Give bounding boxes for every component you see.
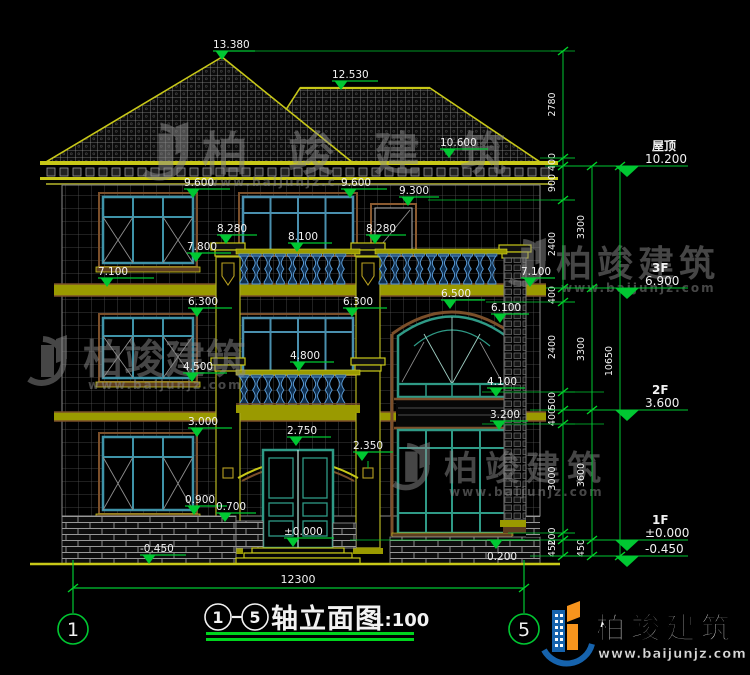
floor-name: 2F: [652, 383, 669, 397]
elevation-value: 3.200: [490, 409, 520, 421]
elevation-value: 4.100: [487, 376, 517, 388]
dim-value: 400: [547, 153, 558, 171]
elevation-value: 12.530: [332, 69, 369, 81]
watermark-text: 柏竣建筑: [202, 127, 546, 181]
drawing-title: 15轴立面图1:100: [205, 603, 429, 641]
brand-url: www.baijunjz.com: [598, 647, 747, 662]
elevation-value: 8.100: [288, 231, 318, 243]
watermark-url: www.baijunjz.com: [88, 378, 243, 392]
title-text: 轴立面图: [271, 603, 383, 635]
elevation-value: 10.600: [440, 137, 477, 149]
elevation-drawing: 柏竣建筑www.baijunjz.c柏竣建筑www.baijunjz.com柏竣…: [0, 0, 750, 675]
elevation-value: 4.500: [183, 361, 213, 373]
dim-value: 10650: [604, 346, 615, 376]
floor-elevation: 6.900: [645, 274, 679, 288]
elevation-value: 2.750: [287, 425, 317, 437]
elevation-value: 0.900: [185, 494, 215, 506]
dentil-block: [99, 168, 107, 176]
elevation-value: 7.800: [187, 241, 217, 253]
watermark-url: www.baijunjz.c: [207, 175, 337, 189]
watermark-text: 柏竣建筑: [556, 244, 720, 285]
cad-elevation-screenshot: 柏竣建筑www.baijunjz.c柏竣建筑www.baijunjz.com柏竣…: [0, 0, 750, 675]
dim-value: 400: [547, 408, 558, 426]
elevation-value: 2.350: [353, 440, 383, 452]
dim-value: 3300: [576, 215, 587, 239]
brand-logo: 柏竣建筑www.baijunjz.com: [544, 601, 747, 664]
brand-watermark-logo: [29, 335, 67, 383]
overall-width-dim: 12300: [281, 573, 316, 586]
elevation-value: 13.380: [213, 39, 250, 51]
dentil-block: [60, 168, 68, 176]
elevation-value: 9.300: [399, 185, 429, 197]
axis-number: 1: [67, 619, 79, 641]
floor-elevation: -0.450: [645, 542, 684, 556]
floor-elevation: 10.200: [645, 152, 687, 166]
elevation-value: 6.100: [491, 302, 521, 314]
title-axis-to: 5: [249, 608, 260, 627]
dentil-block: [47, 168, 55, 176]
dim-value: 500: [547, 392, 558, 410]
dim-value: 2400: [547, 335, 558, 359]
elevation-value: 4.800: [290, 350, 320, 362]
floor-elevation: 3.600: [645, 396, 679, 410]
elevation-value: ±0.000: [284, 526, 323, 538]
floor-name: 3F: [652, 261, 669, 275]
elevation-value: 6.500: [441, 288, 471, 300]
floor-elevation: ±0.000: [645, 526, 689, 540]
window-arched-right: [392, 312, 512, 537]
axis-number: 5: [518, 619, 530, 641]
elevation-value: 9.600: [184, 177, 214, 189]
elevation-value: 6.300: [343, 296, 373, 308]
dentil-block: [112, 168, 120, 176]
watermark-text: 柏竣建筑: [83, 337, 247, 383]
elevation-value: 0.200: [487, 551, 517, 563]
pilaster: [351, 243, 385, 554]
brand-name: 柏竣建筑: [596, 611, 736, 645]
elevation-value: 3.000: [188, 416, 218, 428]
dim-value: 400: [547, 286, 558, 304]
dim-value: 2780: [547, 92, 558, 116]
dim-value: 2400: [547, 232, 558, 256]
title-axis-from: 1: [212, 608, 223, 627]
dim-value: 3300: [576, 337, 587, 361]
dentil-block: [190, 168, 198, 176]
dim-value: 3600: [576, 463, 587, 487]
title-scale: 1:100: [372, 610, 429, 631]
elevation-value: 6.300: [188, 296, 218, 308]
dentil-block: [86, 168, 94, 176]
elevation-value: 0.700: [216, 501, 246, 513]
elevation-value: 8.280: [217, 223, 247, 235]
dim-value: 900: [547, 174, 558, 192]
elevation-value: 8.280: [366, 223, 396, 235]
elevation-value: 7.100: [98, 266, 128, 278]
elevation-value: 7.100: [521, 266, 551, 278]
dim-value: 450: [576, 539, 587, 557]
elevation-value: -0.450: [140, 543, 174, 555]
dentil-block: [73, 168, 81, 176]
dentil-block: [125, 168, 133, 176]
entrance-steps: [236, 548, 360, 564]
floor-name: 屋顶: [652, 139, 676, 153]
dim-value: 3000: [547, 466, 558, 490]
dim-value: 450: [547, 539, 558, 557]
floor-name: 1F: [652, 513, 669, 527]
elevation-value: 9.600: [341, 177, 371, 189]
